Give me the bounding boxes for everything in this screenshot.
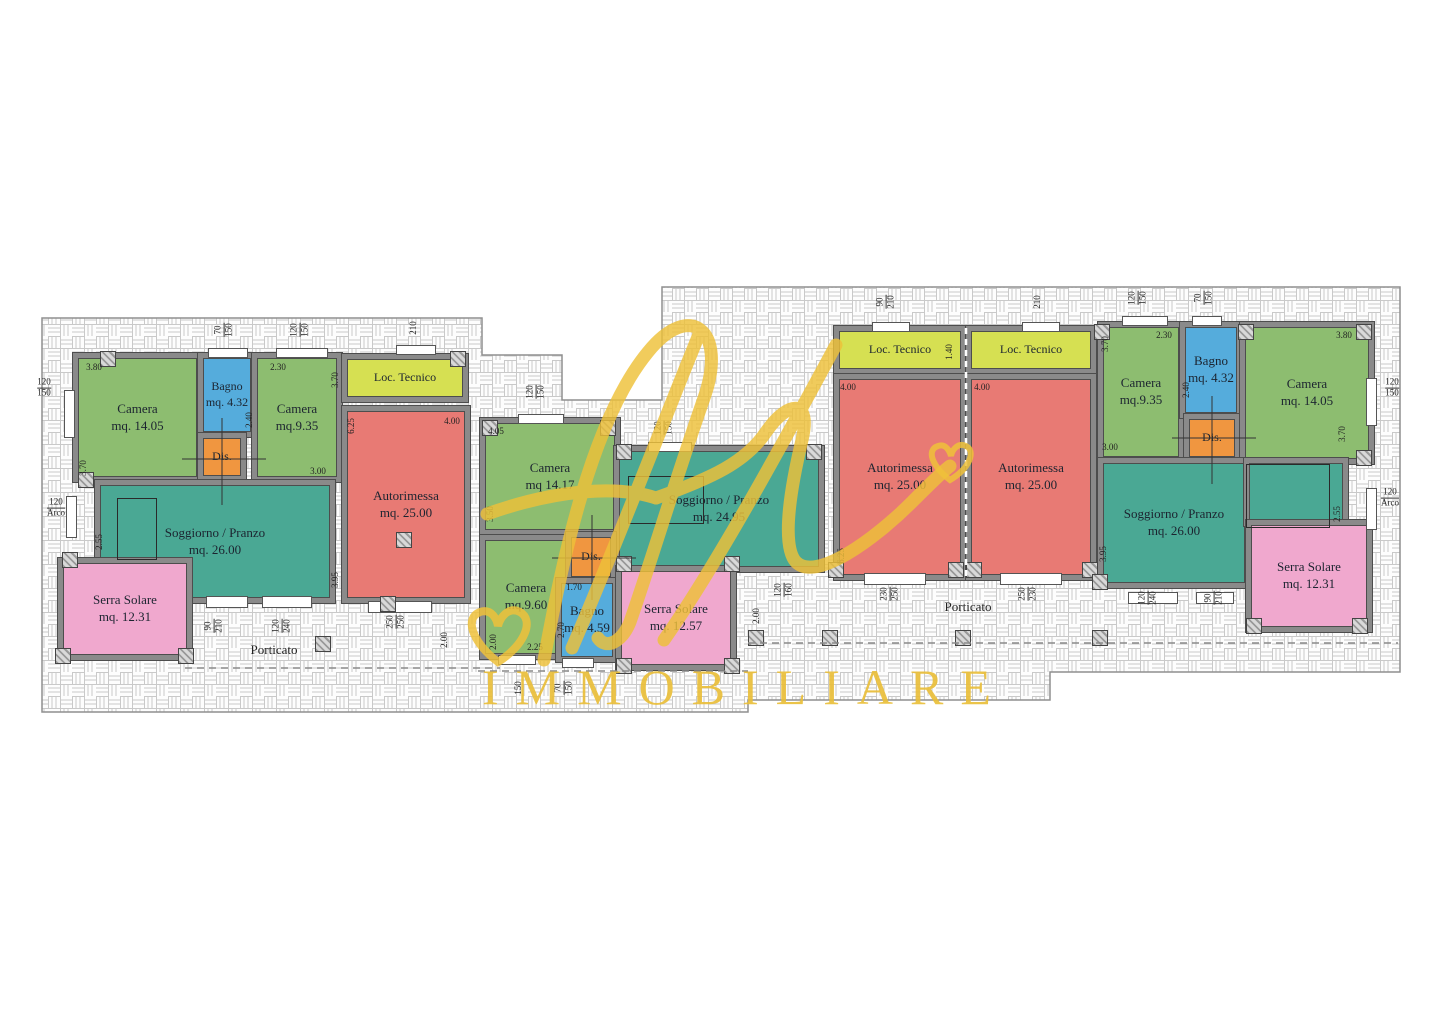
dim-numerator: 250 [385, 615, 395, 629]
window-opening [1366, 488, 1377, 530]
dim-numerator: 90 [875, 298, 885, 307]
dim-value: 2.55 [1332, 506, 1342, 522]
room-label: Bagno [570, 603, 604, 620]
window-opening [518, 414, 564, 424]
window-opening [206, 596, 248, 608]
dimension-label: 2.40 [245, 412, 255, 428]
window-opening [64, 390, 75, 438]
room-label: mq. 14.05 [1281, 393, 1333, 410]
dim-value: 3.70 [1337, 426, 1347, 442]
dimension-label: 6.25 [347, 418, 357, 434]
window-opening [1192, 316, 1222, 326]
dim-value: 3.70 [78, 460, 88, 476]
hatched-pillar [966, 562, 982, 578]
dimension-label: 4.00 [444, 417, 460, 427]
interior-wall-outline [1246, 464, 1330, 528]
room-label: mq. 12.57 [650, 618, 702, 635]
dim-value: 2.25 [527, 642, 543, 652]
dim-denominator: 240 [1148, 591, 1159, 605]
window-opening [66, 496, 77, 538]
room-label: Soggiorno / Pranzo [1124, 506, 1224, 523]
room-dis-d: Dis. [1184, 414, 1240, 462]
window-opening [864, 573, 926, 585]
window-opening [208, 348, 248, 358]
hatched-pillar [616, 444, 632, 460]
dim-value: 4.00 [974, 382, 990, 392]
room-label: mq. 25.00 [380, 505, 432, 522]
dim-numerator: 90 [1203, 594, 1213, 603]
dimension-label: 2.55 [95, 534, 105, 550]
dim-denominator: 150 [564, 681, 575, 695]
dimension-label: 6.25 [837, 548, 847, 564]
dimension-label: 90210 [204, 619, 225, 633]
dim-value: 1.40 [944, 344, 954, 360]
hatched-pillar [1092, 630, 1108, 646]
dim-value: 2.70 [556, 622, 566, 638]
dimension-label: 3.95 [1099, 546, 1109, 562]
room-label: Autorimessa [373, 488, 439, 505]
dim-denominator: Arco [1381, 498, 1399, 509]
dim-denominator: 150 [1138, 291, 1149, 305]
dimension-label: 90210 [1204, 591, 1225, 605]
dimension-label: 120160 [774, 583, 795, 597]
hatched-pillar [724, 658, 740, 674]
dimension-label: 2.30 [1156, 331, 1172, 341]
dimension-label: 120150 [526, 385, 547, 399]
window-opening [498, 655, 536, 665]
room-label: mq. 12.31 [1283, 576, 1335, 593]
dim-numerator: 120 [271, 619, 281, 633]
dimension-label: 3.00 [1102, 443, 1118, 453]
dim-value: 4.00 [840, 382, 856, 392]
hatched-pillar [396, 532, 412, 548]
dim-value: 4.00 [444, 416, 460, 426]
area-label-porticato: Porticato [251, 642, 298, 658]
room-label: Loc. Tecnico [869, 342, 931, 358]
hatched-pillar [1092, 574, 1108, 590]
window-opening [648, 442, 692, 452]
dimension-label: 70150 [1194, 291, 1215, 305]
dim-denominator: 150 [536, 385, 547, 399]
dimension-label: 2.40 [1182, 382, 1192, 398]
room-dis-a: Dis. [198, 433, 246, 481]
dim-numerator: 230 [879, 587, 889, 601]
dim-denominator: 250 [890, 587, 901, 601]
room-serra-solare-b: Serra Solaremq. 12.57 [616, 566, 736, 670]
room-camera-d2: Cameramq. 14.05 [1240, 322, 1374, 464]
dimension-label: 2.30 [270, 363, 286, 373]
dimension-label: 120150 [1385, 378, 1399, 399]
dim-numerator: 120 [289, 323, 299, 337]
room-label: mq.9.35 [276, 418, 319, 435]
room-label: Bagno [1194, 353, 1228, 370]
dimension-label: 230250 [880, 587, 901, 601]
dim-numerator: 70 [1193, 294, 1203, 303]
dim-value: 3.95 [330, 572, 340, 588]
window-opening [1022, 322, 1060, 332]
dim-value: 2.00 [488, 634, 498, 650]
dim-numerator: 120 [49, 497, 63, 507]
dim-denominator: 150 [300, 323, 311, 337]
dimension-label: 3.70 [79, 460, 89, 476]
window-opening [368, 601, 432, 613]
room-label: mq. 4.32 [206, 395, 248, 411]
dimension-label: 3.80 [86, 363, 102, 373]
dim-numerator: 120 [1385, 377, 1399, 387]
window-opening [1000, 573, 1062, 585]
hatched-pillar [315, 636, 331, 652]
room-bagno-d: Bagnomq. 4.32 [1180, 322, 1242, 418]
window-opening [872, 322, 910, 332]
dim-denominator: 210 [886, 295, 897, 309]
dim-numerator: 250 [1017, 587, 1027, 601]
room-label: mq. 26.00 [1148, 523, 1200, 540]
dim-value: 210 [1032, 295, 1042, 309]
dim-denominator: 240 [282, 619, 293, 633]
room-autorimessa-d: Autorimessamq. 25.00 [966, 374, 1096, 580]
room-label: Dis. [212, 449, 232, 465]
dim-denominator: 160 [784, 583, 795, 597]
room-label: mq.9.35 [1120, 392, 1163, 409]
room-label: mq 14.17 [525, 477, 574, 494]
dimension-label: 2.70 [557, 622, 567, 638]
dim-denominator: 150 [664, 421, 675, 435]
dim-numerator: 120 [1137, 591, 1147, 605]
dim-value: 3.80 [1336, 330, 1352, 340]
room-label: mq. 26.00 [189, 542, 241, 559]
dim-value: 3.70 [330, 372, 340, 388]
hatched-pillar [600, 420, 616, 436]
dimension-label: 3.50 [486, 506, 496, 522]
dimension-label: 120150 [654, 421, 675, 435]
dim-numerator: 120 [1127, 291, 1137, 305]
hatched-pillar [806, 444, 822, 460]
dim-numerator: 120 [525, 385, 535, 399]
room-serra-solare-a: Serra Solaremq. 12.31 [58, 558, 192, 660]
dim-value: 3.95 [1098, 546, 1108, 562]
room-label: mq. 25.00 [1005, 477, 1057, 494]
room-soggiorno-d: Soggiorno / Pranzomq. 26.00 [1098, 458, 1250, 588]
dim-denominator: 150 [1385, 388, 1399, 399]
dimension-label: 4.00 [840, 383, 856, 393]
room-label: Loc. Tecnico [374, 370, 436, 386]
dimension-label: 2.25 [527, 643, 543, 653]
hatched-pillar [1356, 450, 1372, 466]
dimension-label: 120240 [1138, 591, 1159, 605]
window-opening [262, 596, 312, 608]
hatched-pillar [748, 630, 764, 646]
room-label: Soggiorno / Pranzo [165, 525, 265, 542]
room-label: mq. 25.00 [874, 477, 926, 494]
room-label: Serra Solare [1277, 559, 1341, 576]
room-label: Camera [1287, 376, 1327, 393]
room-label: Dis. [1202, 430, 1222, 446]
dim-value: 210 [408, 321, 418, 335]
dimension-label: 120150 [1128, 291, 1149, 305]
room-label: Camera [277, 401, 317, 418]
hatched-pillar [616, 556, 632, 572]
dim-denominator: 150 [37, 388, 51, 399]
room-label: Autorimessa [867, 460, 933, 477]
room-serra-solare-d: Serra Solaremq. 12.31 [1246, 520, 1372, 632]
hatched-pillar [616, 658, 632, 674]
hatched-pillar [62, 552, 78, 568]
dim-denominator: 230 [1028, 587, 1039, 601]
room-label: Camera [506, 580, 546, 597]
dimension-label: 3.70 [331, 372, 341, 388]
dim-value: 1.70 [566, 582, 582, 592]
hatched-pillar [178, 648, 194, 664]
window-opening [1122, 316, 1168, 326]
dimension-label: 120150 [290, 323, 311, 337]
dimension-label: 2.00 [489, 634, 499, 650]
dim-value: 6.25 [836, 548, 846, 564]
dim-value: 2.30 [1156, 330, 1172, 340]
room-label: Serra Solare [644, 601, 708, 618]
dimension-label: 120240 [272, 619, 293, 633]
dim-numerator: 120 [1383, 487, 1397, 497]
dimension-label: 3.70 [1101, 336, 1111, 352]
dimension-label: 4.00 [974, 383, 990, 393]
room-label: Camera [530, 460, 570, 477]
room-loc-tecnico-d: Loc. Tecnico [966, 326, 1096, 374]
hatched-pillar [828, 562, 844, 578]
hatched-pillar [55, 648, 71, 664]
room-label: Camera [1121, 375, 1161, 392]
dimension-label: 3.80 [1336, 331, 1352, 341]
hatched-pillar [1246, 618, 1262, 634]
hatched-pillar [1352, 618, 1368, 634]
dim-denominator: 150 [224, 323, 235, 337]
dimension-label: 2.00 [752, 608, 762, 624]
dim-value: 2.00 [439, 632, 449, 648]
dim-value: 2.30 [270, 362, 286, 372]
room-label: mq. 12.31 [99, 609, 151, 626]
hatched-pillar [948, 562, 964, 578]
dim-value: 6.25 [346, 418, 356, 434]
hatched-pillar [380, 596, 396, 612]
dim-denominator: 210 [1214, 591, 1225, 605]
hatched-pillar [1356, 324, 1372, 340]
dimension-label: 210 [409, 321, 419, 335]
hatched-pillar [724, 556, 740, 572]
dim-numerator: 120 [773, 583, 783, 597]
dimension-label: 120Arco [1381, 488, 1399, 509]
dim-denominator: 150 [1204, 291, 1215, 305]
room-label: mq. 4.32 [1188, 370, 1234, 387]
window-opening [276, 348, 328, 358]
room-autorimessa-c: Autorimessamq. 25.00 [834, 374, 966, 580]
dimension-label: 150 [514, 681, 524, 695]
dim-value: 3.70 [1100, 336, 1110, 352]
dim-value: 150 [513, 681, 523, 695]
dimension-label: 1.40 [945, 344, 955, 360]
interior-wall-outline [628, 476, 704, 524]
interior-wall-outline [117, 498, 157, 560]
room-label: Dis. [581, 549, 601, 565]
room-camera-a2: Cameramq.9.35 [252, 353, 342, 482]
hatched-pillar [822, 630, 838, 646]
dim-value: 3.00 [310, 466, 326, 476]
dimension-label: 2.55 [1333, 506, 1343, 522]
dim-denominator: 210 [214, 619, 225, 633]
window-opening [396, 345, 436, 355]
dim-value: 2.40 [1181, 382, 1191, 398]
dim-denominator: Arco [47, 508, 65, 519]
area-label-porticato: Porticato [945, 599, 992, 615]
hatched-pillar [955, 630, 971, 646]
dim-numerator: 70 [213, 326, 223, 335]
dimension-label: 120Arco [47, 498, 65, 519]
dim-value: 3.80 [86, 362, 102, 372]
dimension-label: 1.70 [566, 583, 582, 593]
dimension-label: 2.00 [440, 632, 450, 648]
dim-numerator: 90 [203, 622, 213, 631]
dim-value: 2.55 [94, 534, 104, 550]
hatched-pillar [450, 351, 466, 367]
dimension-label: 250250 [386, 615, 407, 629]
dim-value: 3.50 [485, 506, 495, 522]
room-label: mq. 4.59 [564, 620, 610, 637]
dimension-label: 3.00 [310, 467, 326, 477]
room-label: mq. 14.05 [111, 418, 163, 435]
dim-numerator: 70 [553, 684, 563, 693]
dimension-label: 3.70 [1338, 426, 1348, 442]
window-opening [1366, 378, 1377, 426]
dim-numerator: 120 [653, 421, 663, 435]
dim-value: 2.00 [751, 608, 761, 624]
dimension-label: 3.95 [331, 572, 341, 588]
dim-numerator: 120 [37, 377, 51, 387]
hatched-pillar [100, 351, 116, 367]
room-dis-b: Dis. [566, 532, 616, 582]
room-label: Camera [117, 401, 157, 418]
room-label: mq.9.60 [505, 597, 548, 614]
dimension-label: 210 [1033, 295, 1043, 309]
room-autorimessa-a: Autorimessamq. 25.00 [342, 406, 470, 603]
dimension-label: 90210 [876, 295, 897, 309]
dimension-label: 120150 [37, 378, 51, 399]
window-opening [562, 658, 594, 668]
dim-value: 3.00 [1102, 442, 1118, 452]
room-label: Autorimessa [998, 460, 1064, 477]
dim-value: 2.40 [244, 412, 254, 428]
floor-plan: fl IMMOBILIARE Cameramq. 14.05Bagnomq. 4… [0, 0, 1440, 1018]
room-label: Loc. Tecnico [1000, 342, 1062, 358]
dim-value: 4.05 [488, 426, 504, 436]
dimension-label: 70150 [554, 681, 575, 695]
room-label: Bagno [211, 379, 242, 395]
dimension-label: 4.05 [488, 427, 504, 437]
room-label: Serra Solare [93, 592, 157, 609]
dimension-label: 250230 [1018, 587, 1039, 601]
dim-denominator: 250 [396, 615, 407, 629]
dimension-label: 70150 [214, 323, 235, 337]
hatched-pillar [1238, 324, 1254, 340]
